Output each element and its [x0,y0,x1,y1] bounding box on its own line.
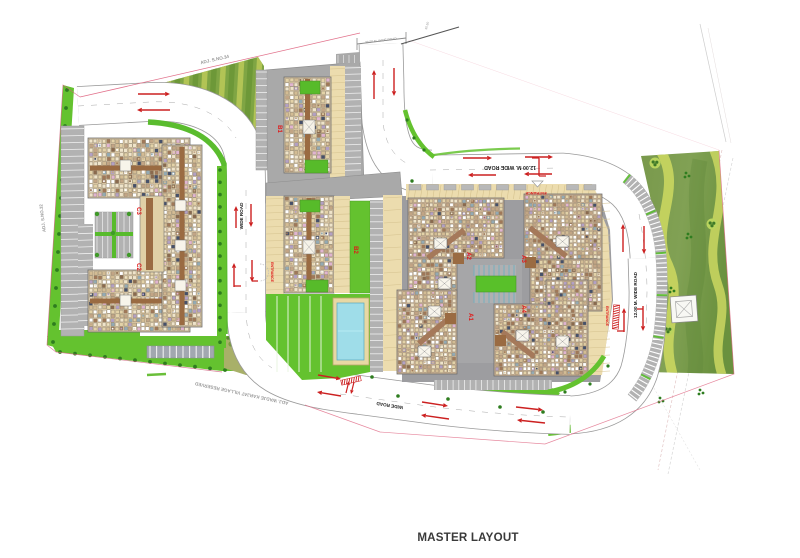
svg-text:B1: B1 [276,125,282,133]
svg-text:C2: C2 [135,263,141,271]
svg-text:12.00 M. WIDE ROAD: 12.00 M. WIDE ROAD [484,164,536,170]
svg-text:A1: A1 [467,313,473,321]
svg-text:MASTER LAYOUT: MASTER LAYOUT [417,531,518,544]
svg-text:12.00 M. WIDE ROAD: 12.00 M. WIDE ROAD [633,271,638,318]
svg-text:ENTRANCE: ENTRANCE [605,306,609,327]
svg-text:A2: A2 [465,252,471,260]
svg-text:A4: A4 [520,305,526,313]
svg-text:ENTRANCE: ENTRANCE [270,262,274,283]
svg-text:WIDE ROAD: WIDE ROAD [239,202,244,229]
svg-text:C3: C3 [135,207,141,215]
svg-text:B2: B2 [352,246,358,254]
svg-text:A3: A3 [520,255,526,263]
svg-text:ENTRANCE: ENTRANCE [525,191,547,195]
